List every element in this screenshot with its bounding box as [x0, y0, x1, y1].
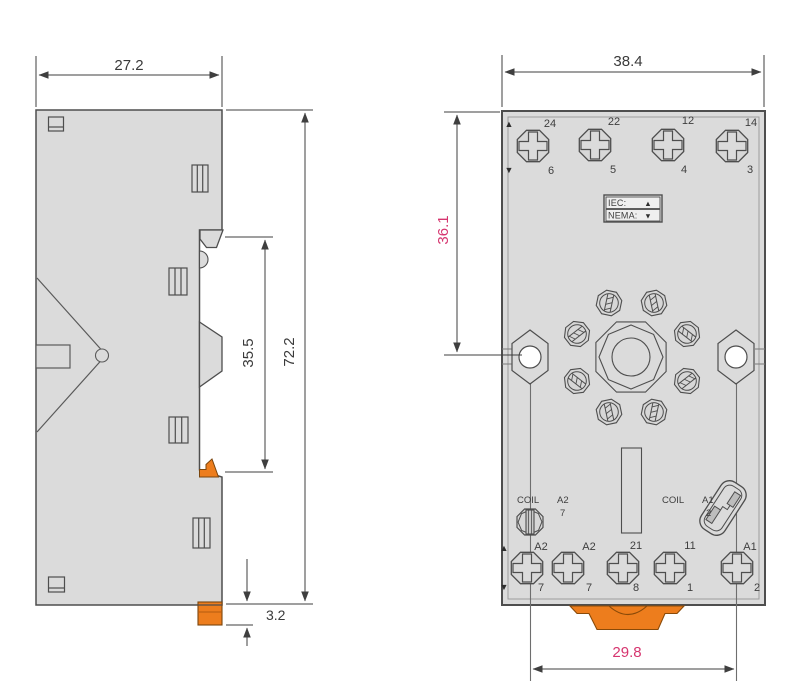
din-hook: [200, 230, 223, 248]
screw-terminal-icon: [511, 552, 542, 583]
up-arrow-icon: ▲: [505, 119, 514, 129]
dim-side-height-label: 72.2: [281, 337, 298, 366]
nema-label: NEMA:: [608, 211, 638, 221]
orange-latch-mid: [200, 459, 219, 477]
coil-left-pin: 7: [560, 508, 565, 519]
standards-badge: IEC: ▲ NEMA: ▼: [604, 195, 662, 222]
terminal-label: 3: [747, 164, 753, 176]
terminal-label: 7: [586, 582, 592, 594]
side-clip-a: [192, 165, 208, 192]
screw-terminal-icon: [607, 552, 638, 583]
orange-release-tab: [570, 606, 684, 630]
down-arrow-icon: ▼: [505, 165, 514, 175]
terminal-label: 5: [610, 164, 616, 176]
terminal-label: A2: [582, 541, 595, 553]
up-arrow-icon: ▲: [644, 199, 651, 208]
terminal-label: 6: [548, 165, 554, 177]
side-clip-d: [193, 518, 210, 548]
terminal-label: A1: [743, 541, 756, 553]
screw-terminal-icon: [721, 552, 752, 583]
dim-front-hole-spacing-label: 29.8: [612, 644, 641, 661]
dim-front-width-label: 38.4: [613, 53, 642, 70]
iec-label: IEC:: [608, 198, 626, 208]
terminal-label: 21: [630, 540, 642, 552]
dim-side-foot: [226, 559, 253, 646]
terminal-label: 4: [681, 164, 687, 176]
side-clip-b: [169, 268, 187, 295]
coil-right-code: A1: [702, 495, 714, 506]
up-arrow-icon: ▲: [500, 543, 509, 553]
din-catch: [200, 322, 223, 387]
coil-left-label2: COIL: [517, 495, 539, 506]
terminal-label: 2: [754, 582, 760, 594]
down-arrow-icon: ▼: [644, 212, 651, 221]
pivot-hole: [96, 349, 109, 362]
side-view: 27.2 72.2 35.5 3.2: [36, 56, 313, 646]
terminal-label: 1: [687, 582, 693, 594]
technical-drawing: 27.2 72.2 35.5 3.2: [0, 0, 800, 694]
front-view: ▲ ▼ 24 22 12 14 6 5 4 3 IEC: ▲ NEMA: ▼: [435, 53, 765, 681]
screw-terminal-icon: [654, 552, 685, 583]
down-arrow-icon: ▼: [500, 582, 509, 592]
technical-drawing-page: 27.2 72.2 35.5 3.2: [0, 0, 800, 694]
screw-terminal-icon: [716, 130, 747, 161]
dim-front-hole-offset-label: 36.1: [435, 215, 452, 244]
coil-right-pin: 2: [706, 508, 711, 519]
terminal-label: 22: [608, 116, 620, 128]
coil-right-label: COIL: [662, 495, 684, 506]
screw-terminal-icon: [517, 130, 548, 161]
screw-terminal-icon: [552, 552, 583, 583]
side-square-bottom: [49, 577, 65, 592]
center-slot: [622, 448, 642, 533]
terminal-label: 8: [633, 582, 639, 594]
orange-foot: [198, 602, 222, 625]
dim-side-recess-label: 35.5: [240, 338, 257, 367]
terminal-label: A2: [534, 541, 547, 553]
side-square-top: [49, 117, 64, 131]
dim-side-foot-label: 3.2: [266, 607, 286, 623]
screw-terminal-icon: [579, 129, 610, 160]
terminal-label: 14: [745, 117, 757, 129]
edge-bump: [200, 251, 209, 268]
side-clip-c: [169, 417, 188, 443]
screw-terminal-icon: [652, 129, 683, 160]
coil-left-code: A2: [557, 495, 569, 506]
terminal-label: 24: [544, 118, 556, 130]
terminal-label: 7: [538, 582, 544, 594]
terminal-label: 12: [682, 115, 694, 127]
dim-side-width-label: 27.2: [114, 57, 143, 74]
terminal-label: 11: [684, 540, 695, 552]
side-slot-rect: [36, 345, 70, 368]
